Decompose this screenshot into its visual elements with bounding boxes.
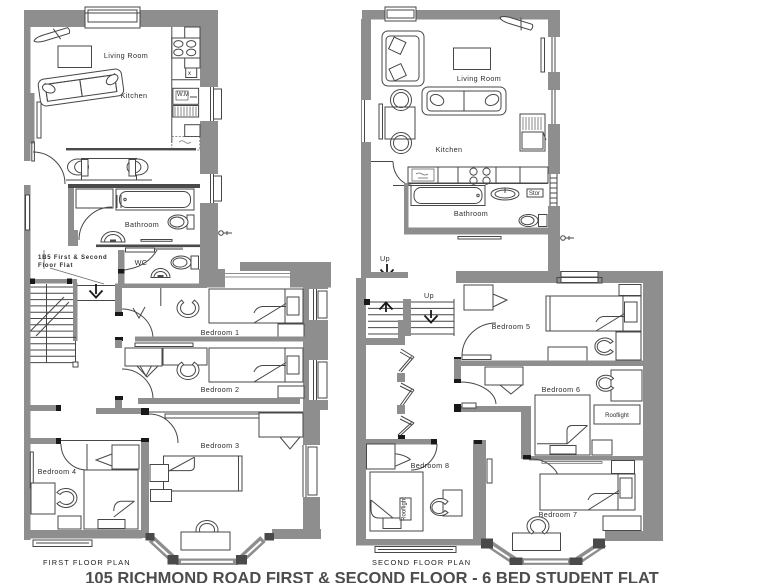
svg-text:Bedroom 2: Bedroom 2 [201, 385, 240, 394]
svg-text:Bedroom 1: Bedroom 1 [201, 328, 240, 337]
svg-text:Kitchen: Kitchen [121, 91, 148, 100]
svg-text:Bedroom 4: Bedroom 4 [38, 467, 77, 476]
svg-text:Bathroom: Bathroom [454, 209, 488, 218]
svg-text:Stor: Stor [529, 191, 540, 197]
svg-text:105 RICHMOND ROAD FIRST & SECO: 105 RICHMOND ROAD FIRST & SECOND FLOOR -… [85, 570, 659, 583]
svg-text:1B5 First & Second: 1B5 First & Second [38, 255, 107, 261]
svg-text:Rooflight: Rooflight [402, 497, 408, 521]
svg-text:W.M: W.M [177, 92, 189, 98]
svg-text:Bedroom 6: Bedroom 6 [542, 385, 581, 394]
svg-text:Rooflight: Rooflight [605, 413, 629, 419]
svg-text:Up: Up [424, 291, 434, 300]
svg-text:SECOND FLOOR PLAN: SECOND FLOOR PLAN [372, 558, 471, 567]
svg-text:Bathroom: Bathroom [125, 220, 159, 229]
svg-text:Living Room: Living Room [104, 51, 148, 60]
svg-text:x: x [188, 71, 191, 77]
svg-text:Bedroom 7: Bedroom 7 [539, 510, 578, 519]
svg-text:Bedroom 8: Bedroom 8 [411, 461, 450, 470]
svg-text:Floor Flat: Floor Flat [38, 263, 73, 269]
svg-text:Bedroom 5: Bedroom 5 [492, 322, 531, 331]
svg-text:FIRST FLOOR PLAN: FIRST FLOOR PLAN [43, 558, 131, 567]
svg-text:Kitchen: Kitchen [436, 145, 463, 154]
svg-text:Bedroom 3: Bedroom 3 [201, 441, 240, 450]
svg-text:Up: Up [380, 254, 390, 263]
svg-text:Living Room: Living Room [457, 74, 501, 83]
